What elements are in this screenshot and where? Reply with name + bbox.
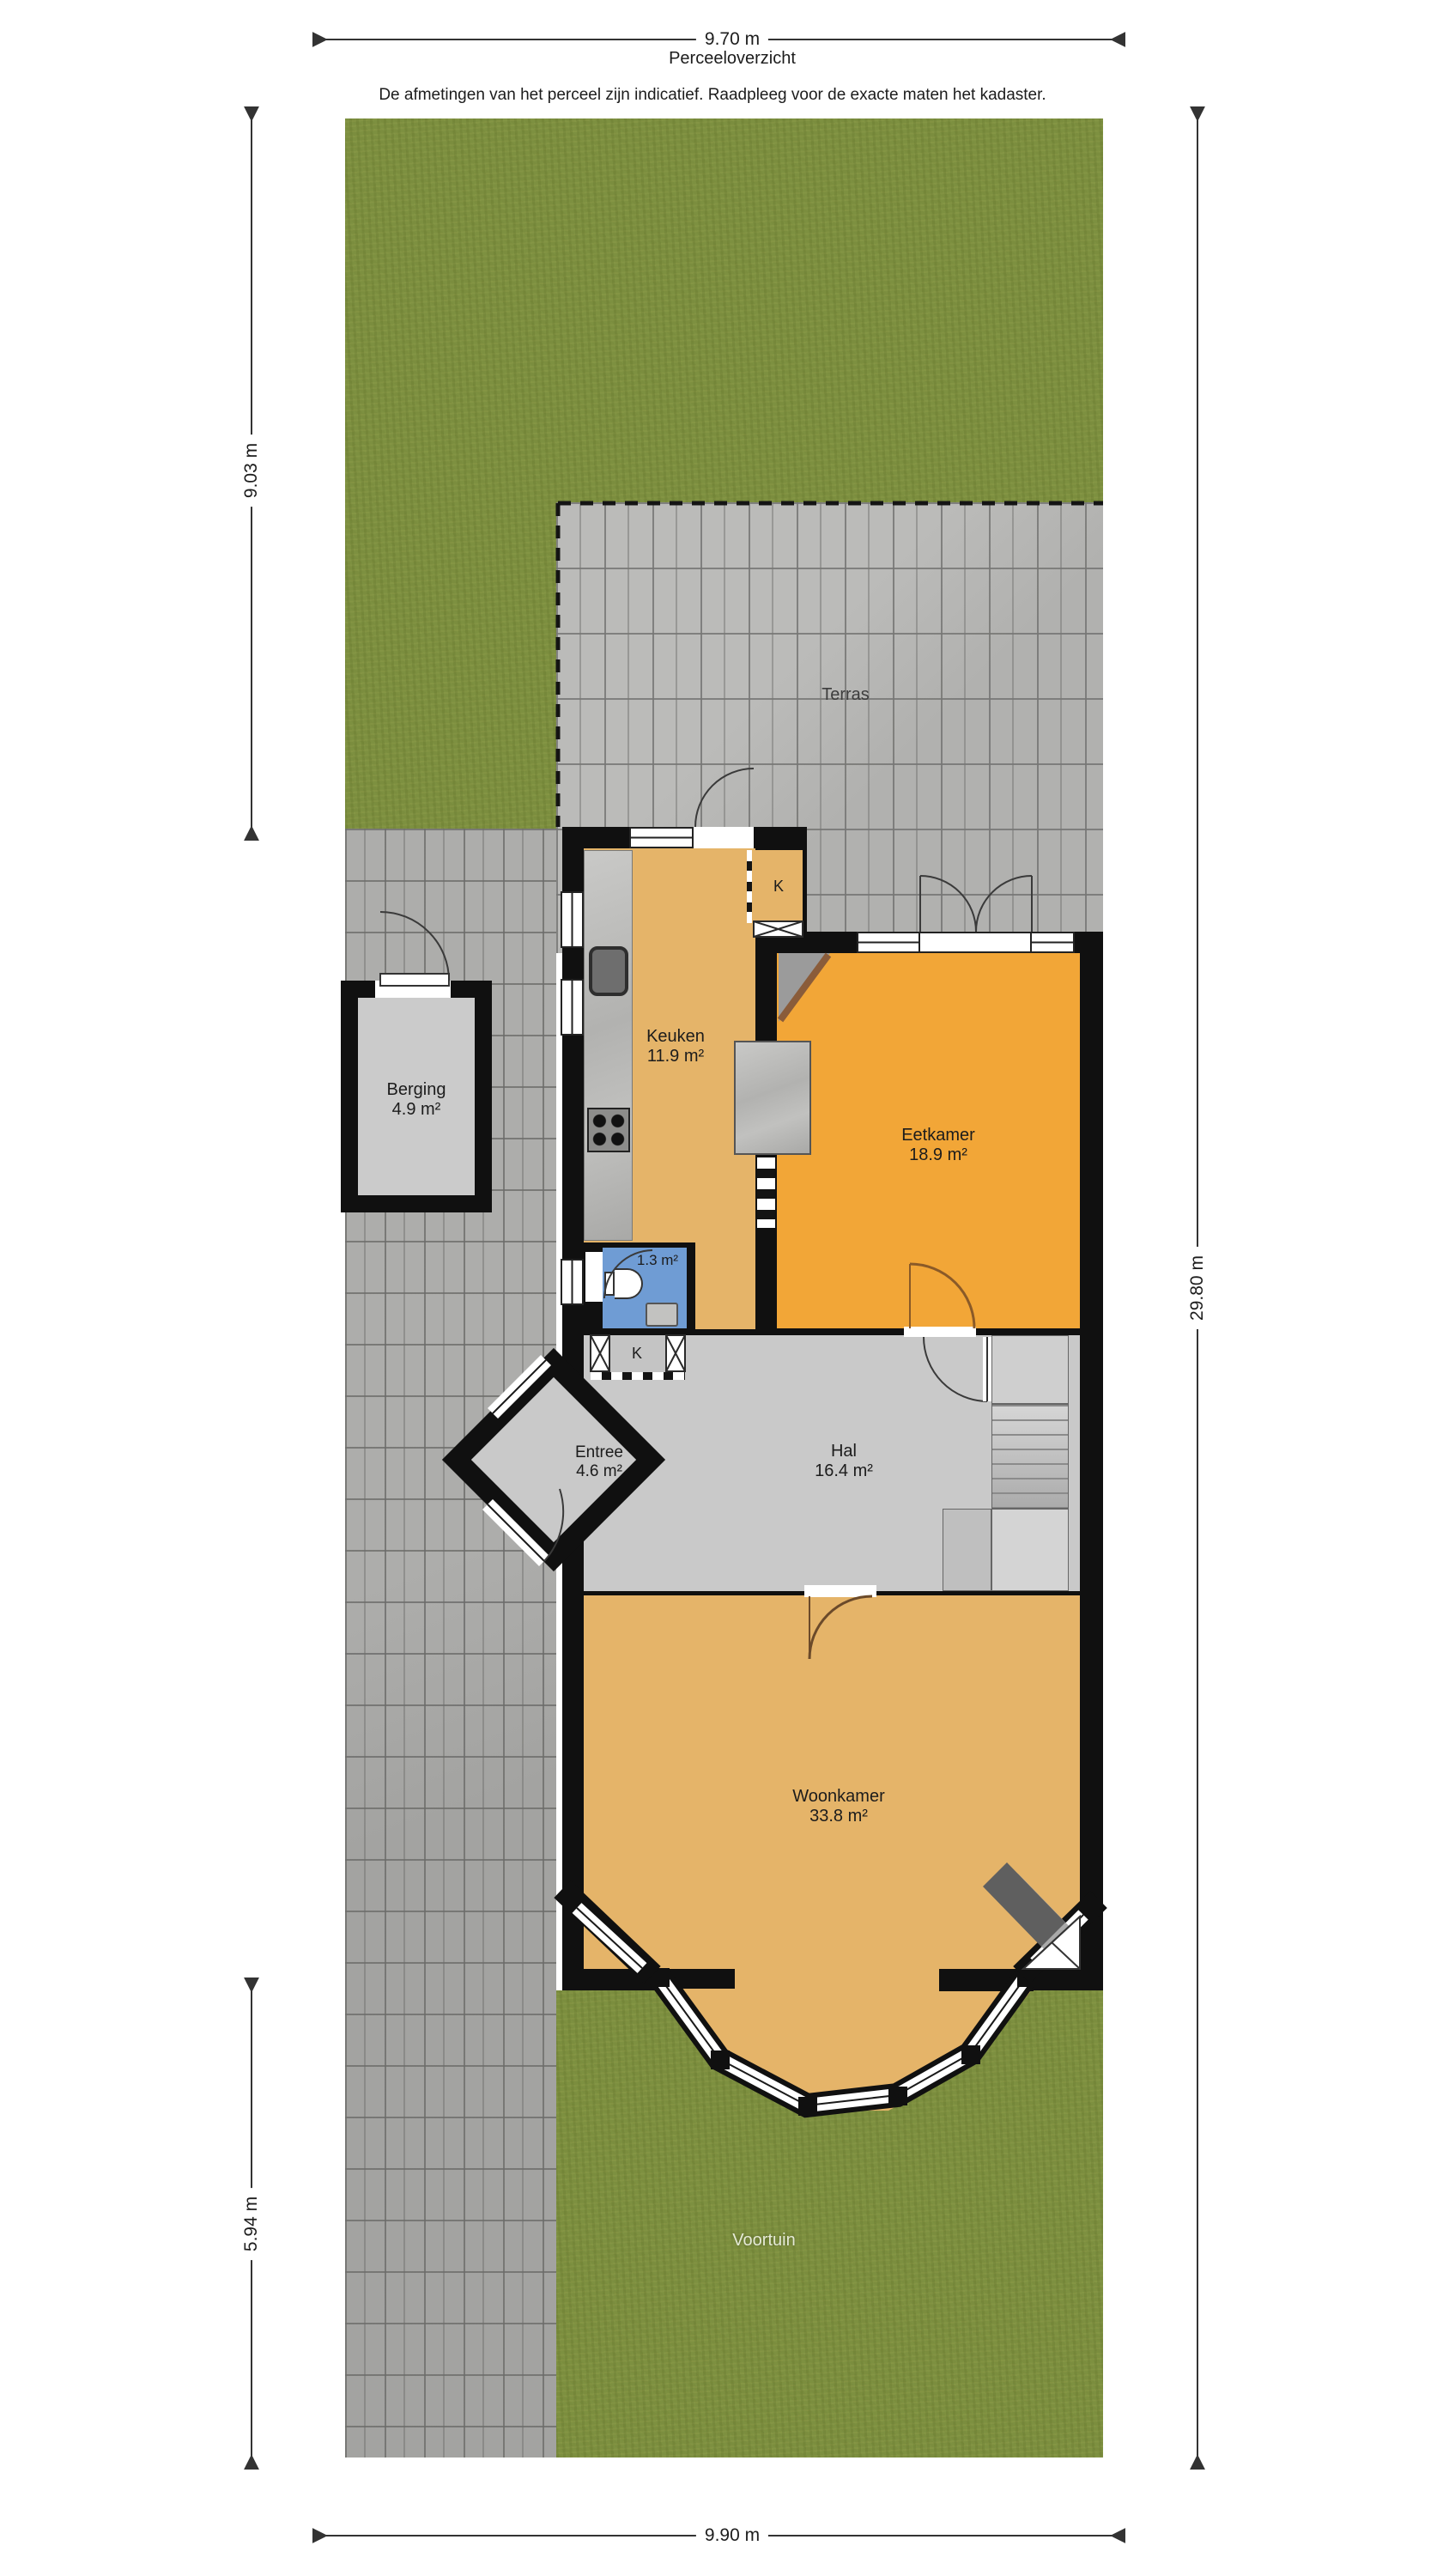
berging-area: 4.9 m² [392, 1100, 441, 1119]
dimension-lines [252, 39, 1197, 2536]
entree-area: 4.6 m² [576, 1462, 622, 1481]
woonkamer-name: Woonkamer [792, 1787, 884, 1806]
floorplan-canvas: 9.70 m Perceeloverzicht De afmetingen va… [0, 0, 1449, 2576]
keuken-name: Keuken [646, 1027, 705, 1046]
right-dimension-label: 29.80 m [1185, 1247, 1210, 1329]
left-lower-dimension-label: 5.94 m [239, 2188, 264, 2260]
door-arcs [380, 769, 1032, 1401]
toilet-area: 1.3 m² [637, 1253, 678, 1268]
plan-title: Perceeloverzicht [669, 49, 796, 68]
entree-windows-door [488, 1360, 563, 1561]
front-garden-label: Voortuin [732, 2231, 795, 2250]
bay-window [562, 1889, 1099, 2116]
terrace-label: Terras [822, 685, 870, 704]
parcel-dashed-boundary [558, 503, 1103, 827]
hal-area: 16.4 m² [815, 1461, 873, 1480]
disclaimer-text: De afmetingen van het perceel zijn indic… [379, 86, 1046, 105]
vector-overlay [0, 0, 1449, 2576]
eetkamer-name: Eetkamer [901, 1126, 975, 1145]
top-dimension-label: 9.70 m [696, 27, 768, 52]
left-upper-dimension-label: 9.03 m [239, 434, 264, 507]
hal-name: Hal [831, 1442, 857, 1461]
woonkamer-area: 33.8 m² [809, 1807, 868, 1826]
eetkamer-area: 18.9 m² [909, 1145, 967, 1164]
kast-x-symbols [591, 921, 803, 1371]
entree-name: Entree [575, 1443, 623, 1462]
bottom-dimension-label: 9.90 m [696, 2524, 768, 2548]
closet-k-upper-label: K [773, 877, 784, 896]
berging-name: Berging [387, 1080, 446, 1099]
keuken-area: 11.9 m² [647, 1047, 704, 1066]
eetkamer-chimney [779, 953, 830, 1022]
closet-k-lower-label: K [632, 1344, 642, 1363]
